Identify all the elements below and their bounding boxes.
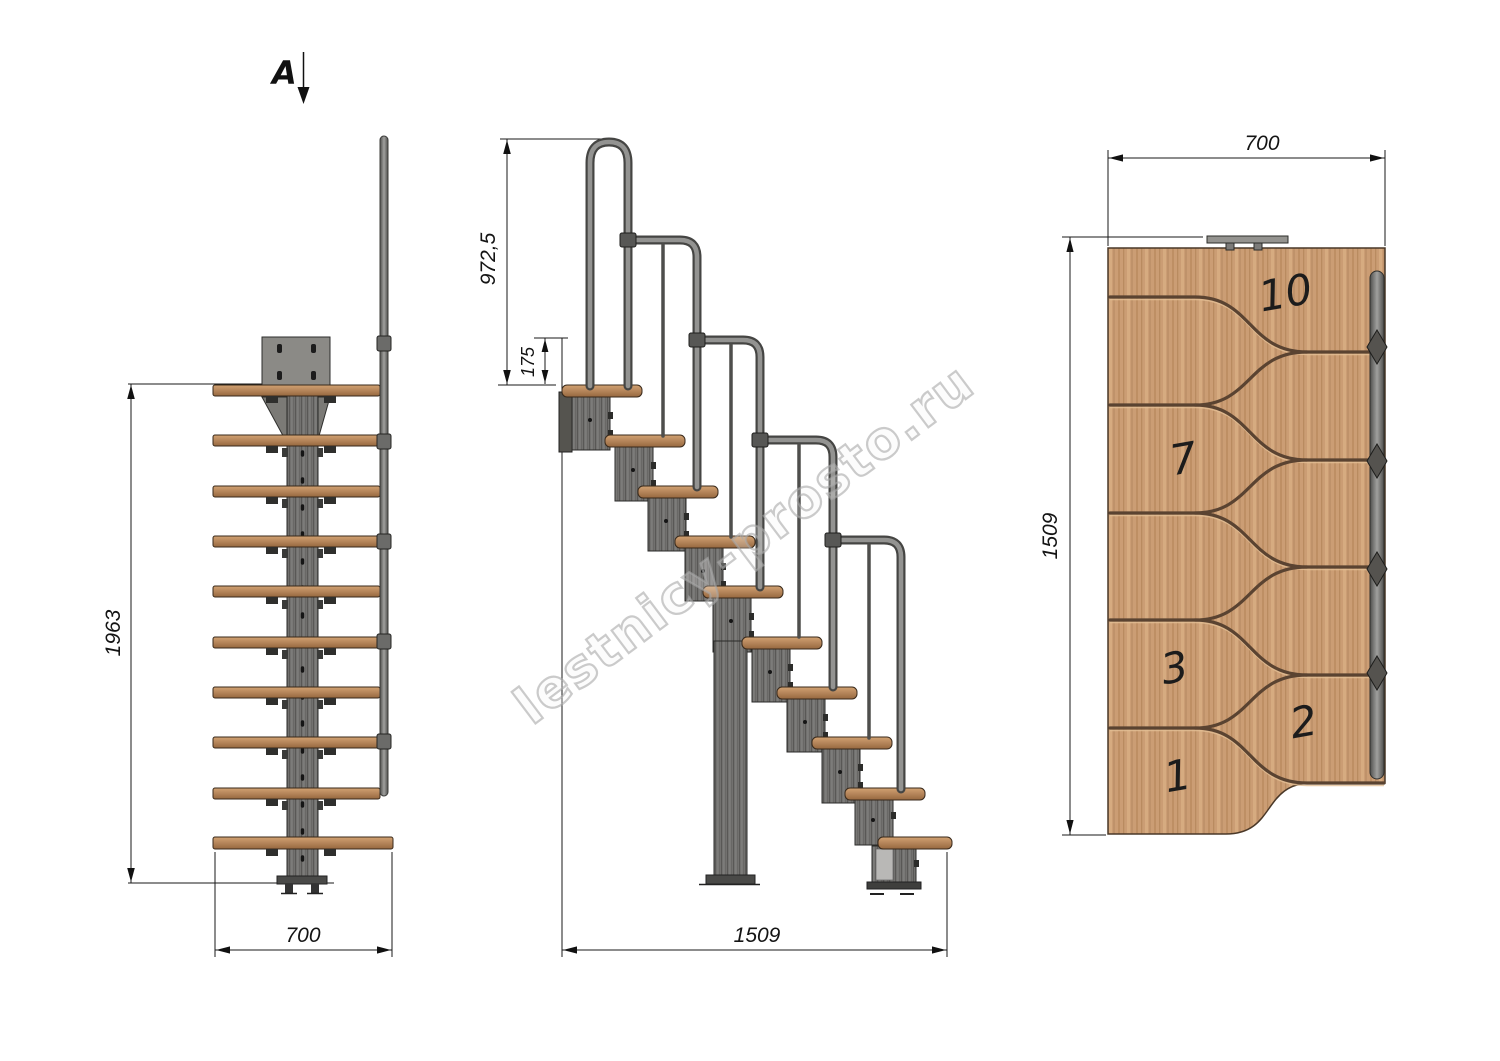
side-length-dimension: 1509 <box>734 924 781 947</box>
column-base-flange <box>706 875 755 884</box>
plan-length-dimension: 1509 <box>1039 512 1062 559</box>
support-column <box>714 641 747 877</box>
arrowhead <box>127 385 135 399</box>
base-plate <box>277 876 327 884</box>
section-arrow-head <box>298 87 310 104</box>
arrowhead <box>216 946 230 953</box>
tread <box>605 435 685 447</box>
tread <box>777 687 857 699</box>
arrowhead <box>1109 154 1123 161</box>
arrowhead <box>503 370 511 384</box>
staircase-drawing: A 1963 <box>0 0 1500 1061</box>
arrowhead <box>932 946 946 953</box>
tread <box>213 486 380 497</box>
step-label-10: 10 <box>1255 264 1316 322</box>
module-base-plate <box>867 882 921 889</box>
plan-view: 700 1509 10 7 <box>1039 132 1387 835</box>
anchor-bolt <box>311 884 319 893</box>
arrowhead <box>542 370 549 383</box>
handrail-post <box>380 136 388 796</box>
arrowhead <box>1066 820 1073 834</box>
front-height-dimension: 1963 <box>102 609 125 656</box>
anchor-bolt <box>285 884 293 893</box>
arrowhead <box>503 140 511 154</box>
plan-width-dimension: 700 <box>1244 132 1279 155</box>
module <box>572 394 610 450</box>
drawing-sheet: A 1963 <box>0 0 1500 1061</box>
tread <box>213 586 380 597</box>
wall-bracket-plan <box>1207 236 1288 243</box>
tread <box>638 486 718 498</box>
front-view: 1963 <box>102 136 393 957</box>
arrowhead <box>542 339 549 352</box>
section-marker-label: A <box>269 54 297 92</box>
tread <box>213 637 380 648</box>
handrail-loop <box>590 142 628 386</box>
tread <box>213 788 380 799</box>
arrowhead <box>1370 154 1384 161</box>
tread <box>213 385 380 396</box>
tread <box>213 737 380 748</box>
tread <box>878 837 952 849</box>
tread <box>812 737 892 749</box>
arrowhead <box>127 868 135 882</box>
arrowhead <box>377 946 391 953</box>
tread <box>213 435 380 446</box>
front-width-dimension: 700 <box>285 924 320 947</box>
tread <box>742 637 822 649</box>
section-marker: A <box>269 52 310 104</box>
top-rise-dimension: 175 <box>518 346 538 377</box>
tread <box>845 788 925 800</box>
module-panel <box>876 849 893 880</box>
tread <box>213 687 380 698</box>
tread-panel <box>1108 248 1385 834</box>
arrowhead <box>1066 238 1073 252</box>
bracket-leg <box>1254 243 1262 250</box>
tread <box>213 536 380 547</box>
handrail-height-dimension: 972,5 <box>477 232 500 285</box>
bracket-leg <box>1226 243 1234 250</box>
tread <box>213 837 393 849</box>
arrowhead <box>563 946 577 953</box>
